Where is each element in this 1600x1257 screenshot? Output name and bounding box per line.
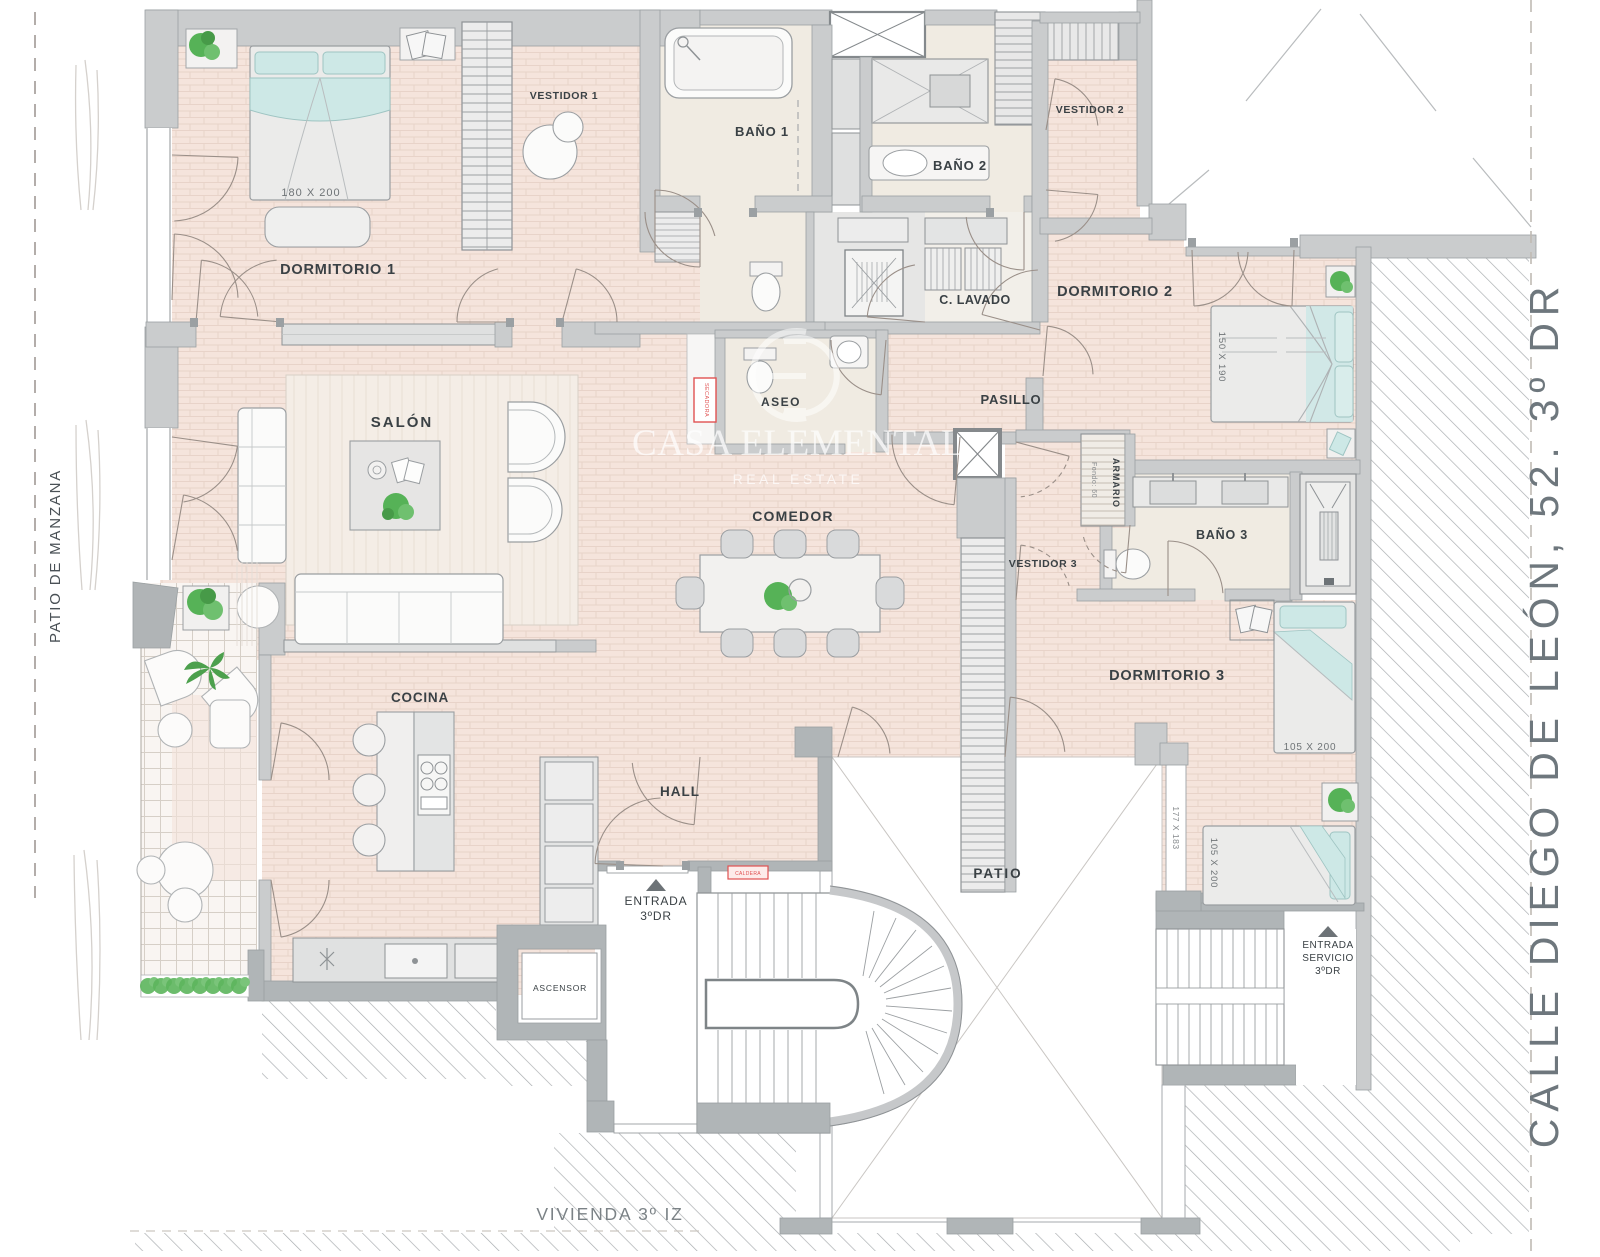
svg-text:DORMITORIO 1: DORMITORIO 1 — [280, 262, 396, 278]
svg-text:BAÑO 3: BAÑO 3 — [1196, 527, 1248, 542]
svg-text:SALÓN: SALÓN — [371, 413, 434, 431]
svg-text:105 X 200: 105 X 200 — [1208, 838, 1219, 889]
svg-text:BAÑO 1: BAÑO 1 — [735, 124, 789, 139]
svg-text:Fondo: 60: Fondo: 60 — [1090, 462, 1097, 498]
svg-text:105 X 200: 105 X 200 — [1284, 742, 1337, 753]
svg-text:ARMARIO: ARMARIO — [1111, 458, 1121, 508]
svg-text:CALLE DIEGO DE LEÓN, 52. 3º DR: CALLE DIEGO DE LEÓN, 52. 3º DR — [1521, 280, 1567, 1148]
svg-text:ENTRADA: ENTRADA — [1302, 940, 1353, 951]
svg-text:3ºDR: 3ºDR — [640, 909, 672, 923]
svg-text:PASILLO: PASILLO — [981, 392, 1042, 407]
svg-text:ASCENSOR: ASCENSOR — [533, 983, 587, 993]
svg-text:COCINA: COCINA — [391, 690, 449, 705]
svg-text:SECADORA: SECADORA — [703, 383, 709, 417]
svg-text:ASEO: ASEO — [761, 395, 801, 409]
svg-text:3ºDR: 3ºDR — [1315, 966, 1341, 977]
svg-text:DORMITORIO 2: DORMITORIO 2 — [1057, 284, 1173, 300]
svg-text:HALL: HALL — [660, 784, 700, 799]
svg-text:C. LAVADO: C. LAVADO — [939, 293, 1010, 307]
svg-text:CASA ELEMENTAL: CASA ELEMENTAL — [632, 423, 964, 464]
svg-text:150 X 190: 150 X 190 — [1216, 332, 1227, 383]
svg-text:BAÑO 2: BAÑO 2 — [933, 158, 987, 173]
svg-text:COMEDOR: COMEDOR — [752, 508, 834, 524]
svg-text:180 X 200: 180 X 200 — [281, 187, 340, 199]
svg-text:VESTIDOR 2: VESTIDOR 2 — [1056, 104, 1124, 116]
svg-text:177 X 183: 177 X 183 — [1171, 806, 1181, 849]
svg-text:VESTIDOR 1: VESTIDOR 1 — [530, 90, 598, 102]
svg-text:DORMITORIO 3: DORMITORIO 3 — [1109, 668, 1225, 684]
svg-text:REAL ESTATE: REAL ESTATE — [733, 471, 864, 487]
svg-text:VESTIDOR 3: VESTIDOR 3 — [1009, 558, 1077, 570]
svg-text:ENTRADA: ENTRADA — [625, 894, 688, 908]
svg-text:PATIO DE MANZANA: PATIO DE MANZANA — [47, 469, 64, 643]
svg-text:VIVIENDA 3º IZ: VIVIENDA 3º IZ — [536, 1204, 683, 1224]
svg-text:PATIO: PATIO — [973, 866, 1022, 881]
svg-text:CALDERA: CALDERA — [735, 871, 761, 877]
svg-text:SERVICIO: SERVICIO — [1302, 953, 1354, 964]
